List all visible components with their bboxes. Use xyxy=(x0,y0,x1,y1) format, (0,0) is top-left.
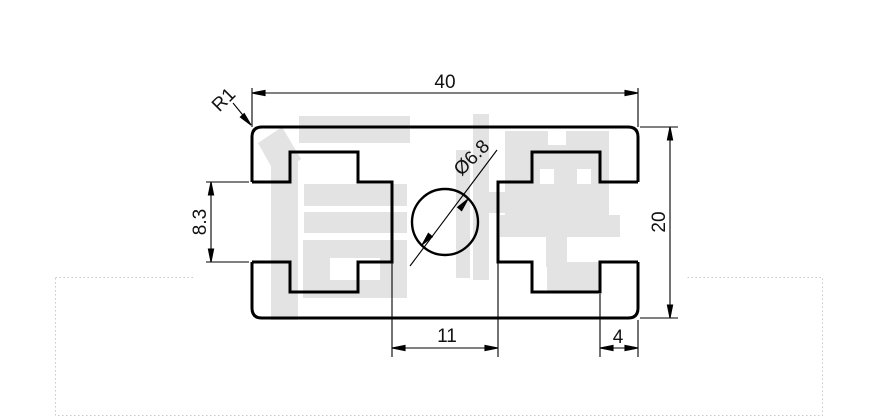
dim-label-slot-opening: 8.3 xyxy=(190,209,211,235)
dim-label-center-channel: 11 xyxy=(437,326,457,347)
dim-label-overall-height: 20 xyxy=(649,211,670,232)
page: 信牌 40 xyxy=(0,0,880,420)
technical-drawing-canvas: 信牌 40 xyxy=(0,0,880,420)
dim-label-edge-flange: 4 xyxy=(613,327,624,348)
dim-label-overall-width: 40 xyxy=(434,72,455,93)
